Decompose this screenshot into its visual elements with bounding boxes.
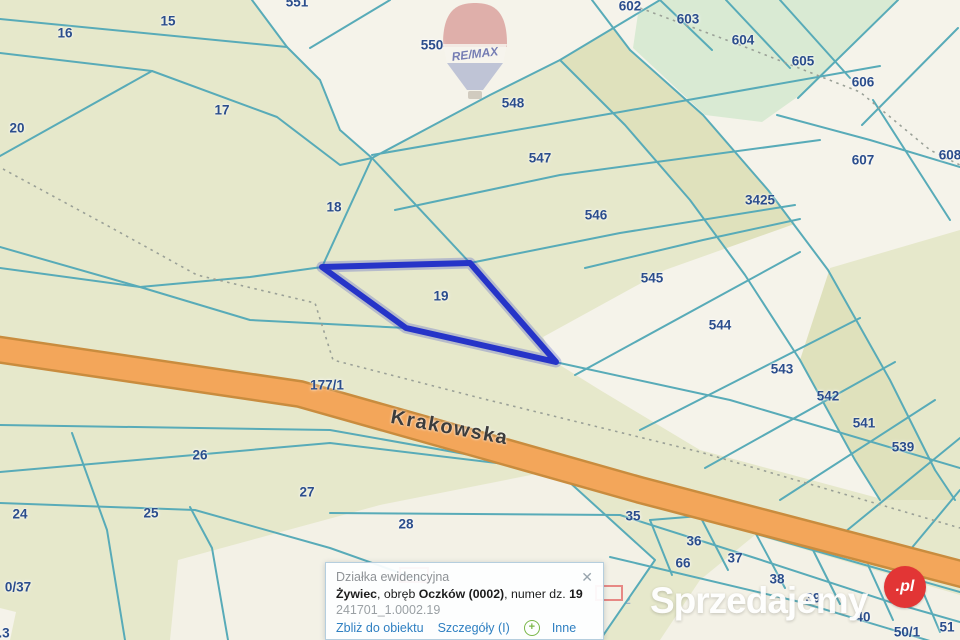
parcel-description: Żywiec, obręb Oczków (0002), numer dz. 1…: [336, 587, 593, 601]
town-name: Żywiec: [336, 587, 377, 601]
district-name: Oczków (0002): [419, 587, 504, 601]
remax-balloon-logo: RE/MAX: [436, 0, 514, 102]
close-icon[interactable]: ✕: [581, 570, 593, 584]
parcel-info-popup: Działka ewidencyjna ✕ Żywiec, obręb Oczk…: [325, 562, 604, 640]
more-link[interactable]: Inne: [552, 621, 576, 635]
parcel-number: 19: [569, 587, 583, 601]
plus-circle-icon[interactable]: +: [524, 620, 540, 636]
cadastral-map-view[interactable]: 1615551172018550548547546195455445435425…: [0, 0, 960, 640]
highlighted-parcel-19[interactable]: [322, 263, 556, 362]
parcel-id-code: 241701_1.0002.19: [336, 603, 593, 617]
details-link[interactable]: Szczegóły (I): [438, 621, 510, 635]
zoom-to-object-link[interactable]: Zbliż do obiektu: [336, 621, 424, 635]
popup-title: Działka ewidencyjna: [336, 570, 449, 584]
